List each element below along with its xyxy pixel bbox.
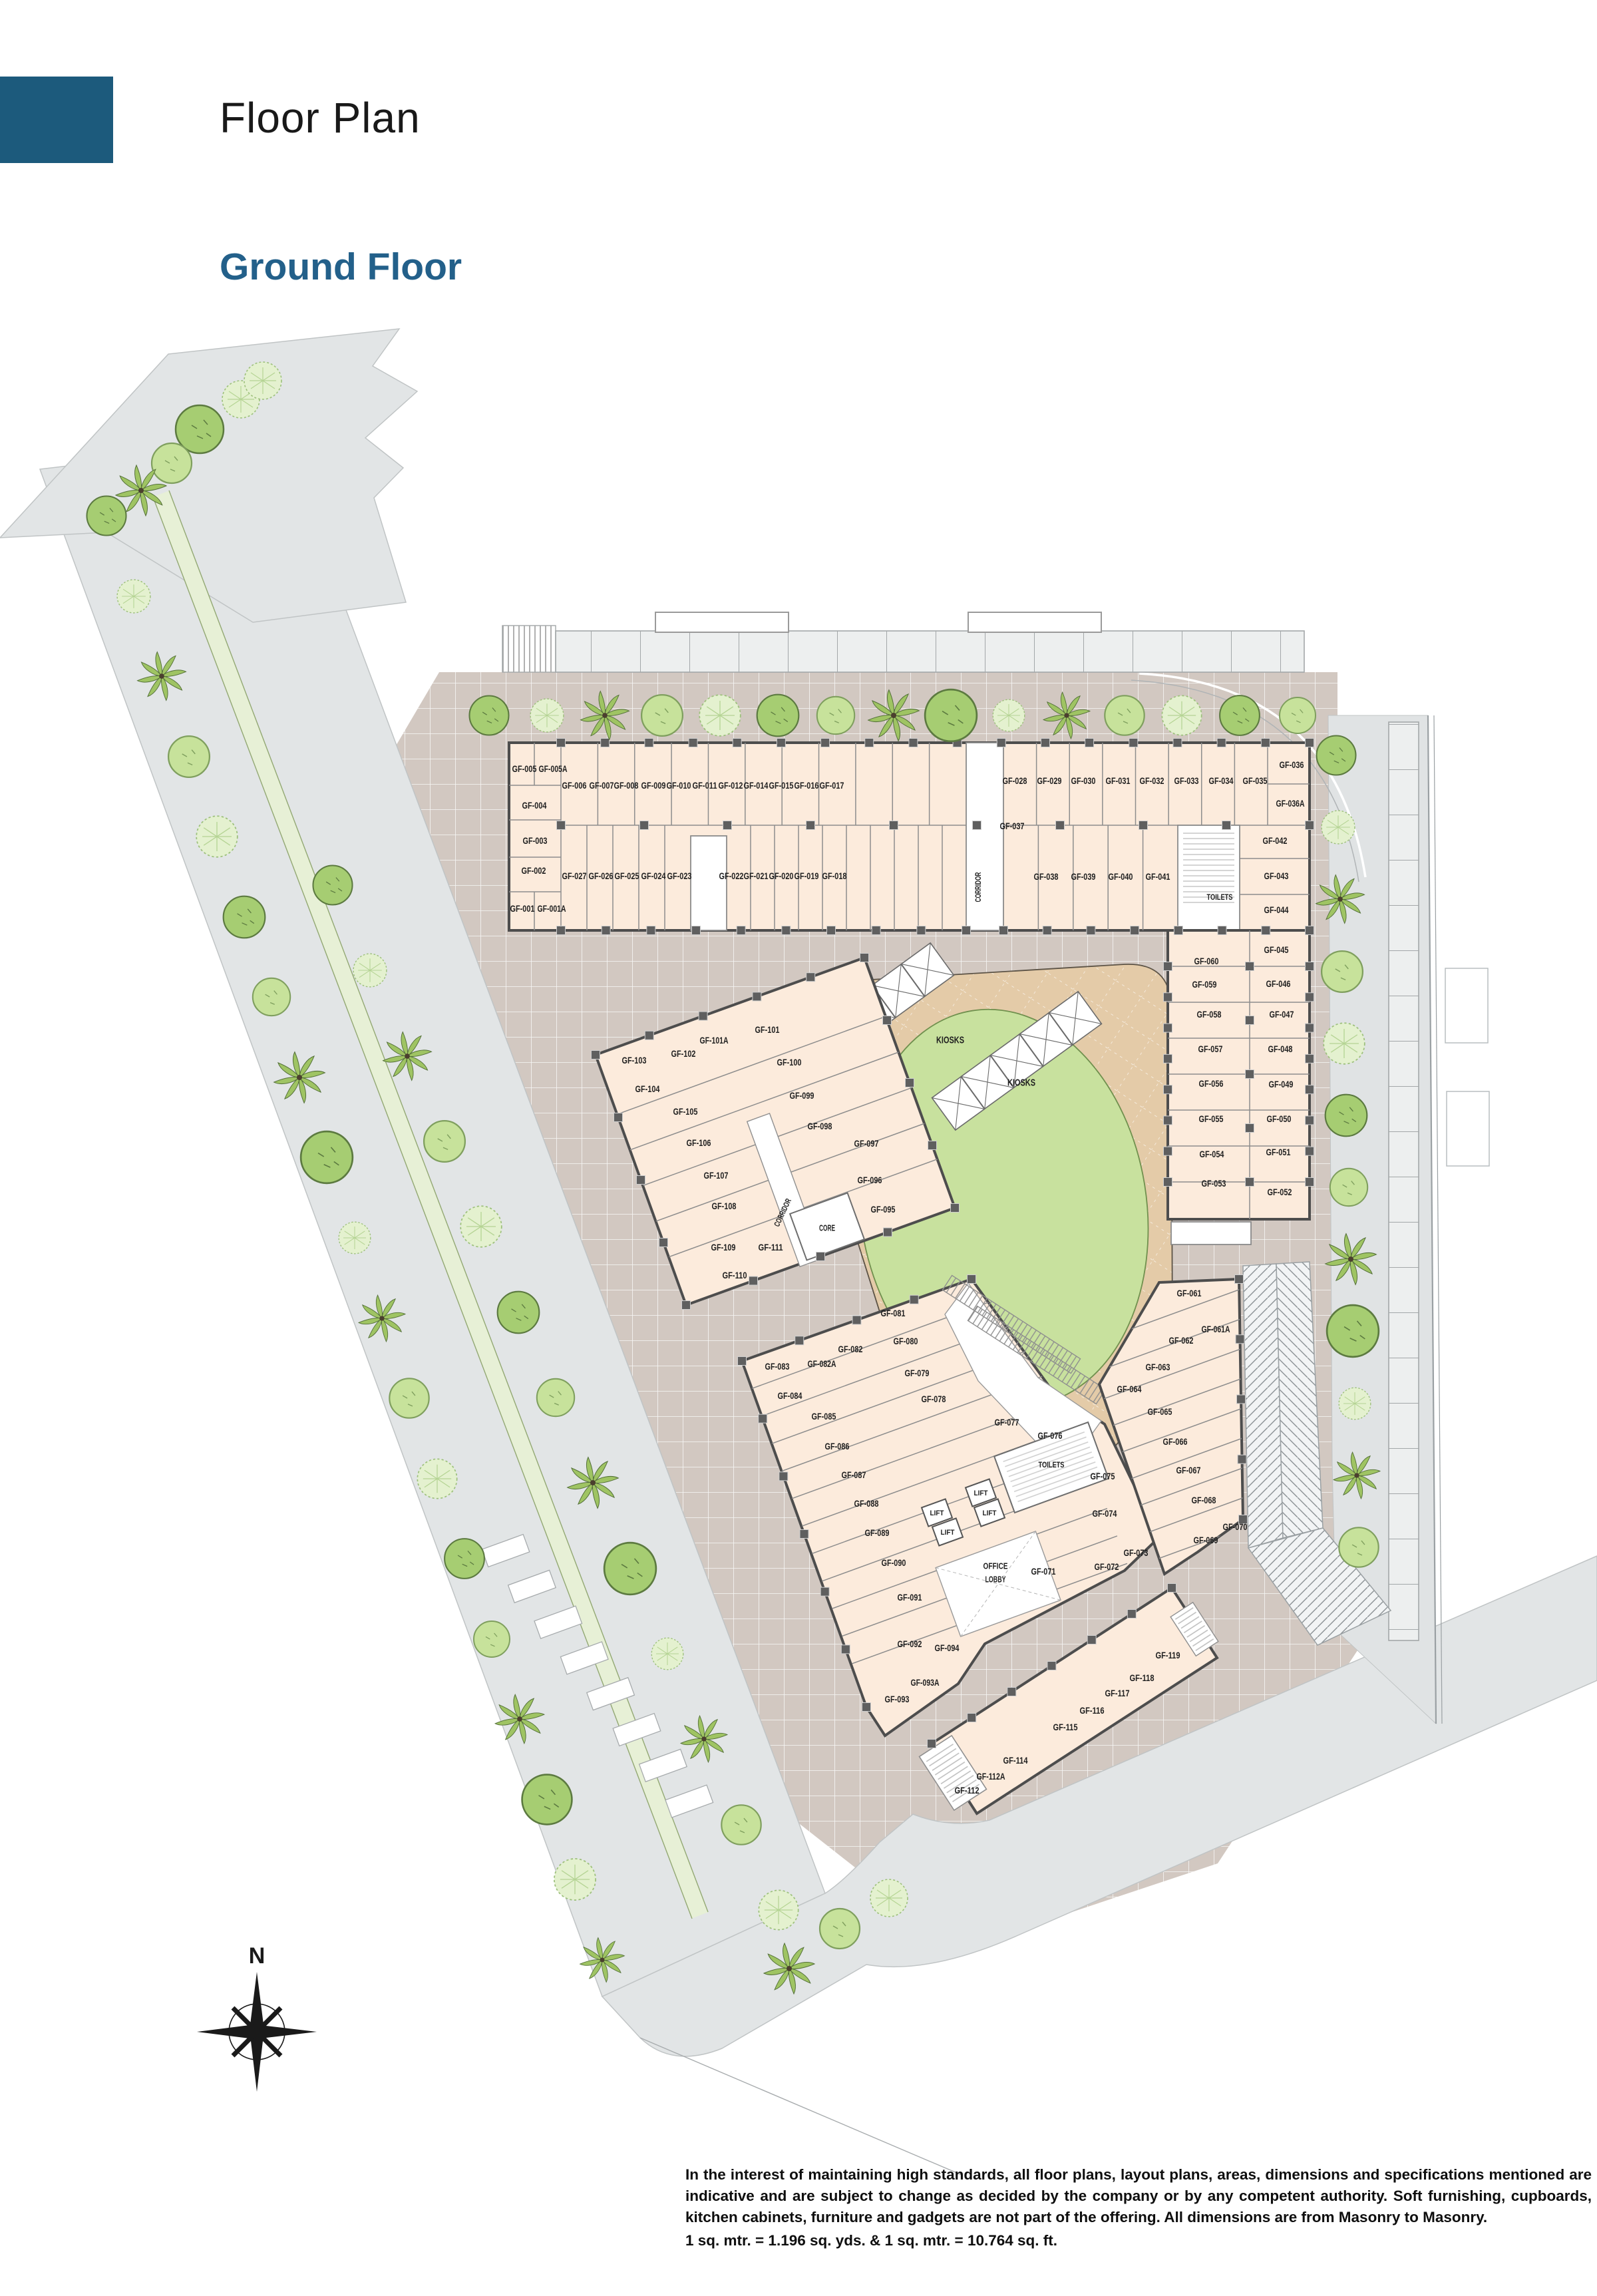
canopy	[968, 612, 1101, 632]
area-label: TOILETS	[1207, 892, 1233, 902]
unit-label: GF-008	[614, 780, 639, 791]
unit-label: GF-042	[1263, 835, 1288, 846]
unit-label: GF-006	[562, 780, 587, 791]
tree	[651, 1638, 683, 1670]
unit-label: GF-031	[1106, 775, 1131, 786]
unit-label: GF-084	[778, 1390, 802, 1401]
unit-label: GF-106	[687, 1137, 711, 1148]
unit-label: GF-005A	[539, 763, 568, 774]
unit-label: GF-102	[671, 1048, 696, 1059]
tree	[1339, 1527, 1378, 1567]
tree	[604, 1543, 656, 1595]
unit-label: GF-085	[812, 1411, 836, 1422]
unit-label: GF-069	[1194, 1535, 1218, 1545]
tree	[993, 699, 1025, 731]
unit-label: GF-111	[759, 1242, 783, 1252]
compass-rose: N	[197, 1943, 317, 2092]
unit-label: GF-110	[723, 1270, 747, 1280]
tree	[196, 816, 238, 857]
unit-label: GF-015	[769, 780, 794, 791]
unit-label: GF-107	[704, 1170, 729, 1181]
unit-label: GF-043	[1264, 870, 1289, 881]
unit-label: GF-112A	[977, 1771, 1005, 1782]
neighbor-stall	[1447, 1091, 1489, 1166]
unit-label: GF-005	[512, 763, 537, 774]
unit-label: GF-096	[858, 1175, 882, 1185]
tree	[817, 697, 854, 734]
top-left-parcel-road	[0, 329, 417, 622]
area-label: LIFT	[930, 1509, 944, 1517]
unit-label: GF-097	[854, 1138, 879, 1149]
unit-label: GF-076	[1038, 1430, 1063, 1441]
unit-label: GF-040	[1109, 871, 1133, 882]
unit-label: GF-104	[635, 1083, 660, 1094]
unit-label: GF-054	[1200, 1149, 1224, 1159]
tree	[353, 954, 387, 987]
unit-label: GF-093	[885, 1694, 910, 1704]
tree	[117, 580, 150, 613]
area-label: LIFT	[941, 1529, 955, 1537]
unit-label: GF-058	[1197, 1009, 1222, 1020]
tree	[530, 699, 564, 732]
unit-label: GF-101	[755, 1024, 780, 1035]
unit-label: GF-033	[1174, 775, 1199, 786]
unit-label: GF-071	[1031, 1566, 1056, 1577]
unit-label: GF-056	[1199, 1078, 1224, 1089]
unit-label: GF-063	[1146, 1362, 1170, 1372]
unit-label: GF-072	[1095, 1561, 1119, 1572]
unit-label: GF-046	[1266, 978, 1291, 989]
tree	[87, 496, 126, 535]
unit-label: GF-004	[522, 800, 547, 811]
compass-n-label: N	[249, 1943, 266, 1969]
tree	[1220, 695, 1260, 735]
unit-label: GF-025	[615, 870, 639, 881]
tree	[1326, 1095, 1367, 1137]
tree	[498, 1292, 540, 1334]
unit-label: GF-108	[712, 1201, 737, 1211]
unit-label: GF-074	[1093, 1508, 1117, 1519]
tree	[699, 695, 741, 736]
unit-label: GF-020	[769, 870, 794, 881]
unit-label: GF-100	[777, 1057, 802, 1067]
tree	[1322, 811, 1355, 844]
unit-label: GF-048	[1268, 1044, 1293, 1054]
conversion-note: 1 sq. mtr. = 1.196 sq. yds. & 1 sq. mtr.…	[685, 2230, 1592, 2251]
unit-label: GF-116	[1080, 1705, 1105, 1716]
unit-label: GF-077	[995, 1417, 1019, 1428]
unit-label: GF-017	[820, 780, 844, 791]
unit-label: GF-115	[1053, 1722, 1078, 1732]
unit-label: GF-061	[1177, 1288, 1202, 1298]
unit-label: GF-019	[795, 870, 819, 881]
unit-label: GF-018	[822, 870, 847, 881]
tree	[537, 1379, 574, 1416]
east-wing	[1168, 930, 1310, 1219]
tree	[925, 689, 977, 741]
unit-label: GF-009	[641, 780, 666, 791]
band-corridor	[966, 743, 1003, 930]
area-label: OFFICE	[983, 1561, 1008, 1571]
tree	[1280, 697, 1316, 733]
area-label: LIFT	[983, 1509, 997, 1517]
unit-label: GF-082A	[808, 1358, 836, 1369]
unit-label: GF-066	[1163, 1436, 1188, 1447]
unit-label: GF-003	[523, 835, 548, 846]
unit-label: GF-105	[673, 1106, 698, 1117]
canopy	[655, 612, 789, 632]
unit-label: GF-024	[641, 870, 666, 881]
tree	[1105, 695, 1144, 735]
unit-label: GF-059	[1192, 979, 1217, 990]
unit-label: GF-089	[865, 1527, 890, 1538]
unit-label: GF-039	[1071, 871, 1096, 882]
tree	[244, 362, 281, 399]
tree	[1322, 951, 1363, 992]
area-label: LIFT	[974, 1489, 988, 1497]
east-parking-column	[1389, 722, 1419, 1640]
tree	[389, 1378, 429, 1418]
unit-label: GF-022	[719, 870, 744, 881]
tree	[1327, 1305, 1379, 1357]
unit-label: GF-026	[589, 870, 614, 881]
tree	[417, 1459, 456, 1498]
area-label: TOILETS	[1039, 1460, 1065, 1469]
area-label: CORE	[819, 1223, 835, 1233]
unit-label: GF-050	[1267, 1113, 1292, 1124]
unit-label: GF-099	[790, 1090, 814, 1101]
tree	[522, 1775, 572, 1825]
tree	[1316, 735, 1355, 775]
unit-label: GF-011	[693, 780, 717, 791]
unit-label: GF-047	[1270, 1009, 1294, 1020]
unit-label: GF-061A	[1202, 1324, 1230, 1334]
tree	[1324, 1023, 1365, 1064]
neighbor-stall	[1445, 968, 1488, 1043]
unit-label: GF-118	[1130, 1672, 1154, 1683]
unit-label: GF-053	[1202, 1178, 1226, 1189]
tree	[554, 1859, 596, 1900]
unit-label: GF-109	[711, 1242, 736, 1252]
unit-label: GF-087	[842, 1469, 866, 1480]
tree	[820, 1909, 860, 1949]
unit-label: GF-086	[825, 1441, 850, 1451]
unit-label: GF-034	[1209, 775, 1234, 786]
unit-label: GF-030	[1071, 775, 1096, 786]
tree	[444, 1539, 484, 1579]
unit-label: GF-062	[1169, 1335, 1194, 1346]
floor-plan-drawing: N GF-005GF-005AGF-004GF-003GF-002GF-001G…	[0, 0, 1597, 2296]
tree	[152, 443, 192, 483]
unit-label: GF-057	[1198, 1044, 1223, 1054]
unit-label: GF-065	[1148, 1406, 1172, 1417]
unit-label: GF-068	[1192, 1495, 1216, 1505]
unit-label: GF-060	[1194, 956, 1219, 966]
unit-label: GF-119	[1156, 1650, 1180, 1660]
top-parking-comb	[502, 626, 556, 672]
wing-external-stair	[1171, 1222, 1251, 1244]
unit-label: GF-079	[905, 1368, 930, 1378]
unit-label: GF-012	[719, 780, 743, 791]
unit-label: GF-055	[1199, 1113, 1224, 1124]
unit-label: GF-023	[667, 870, 692, 881]
tree	[757, 695, 799, 737]
tree	[253, 978, 290, 1016]
unit-label: GF-091	[898, 1592, 922, 1603]
tree	[1162, 695, 1201, 735]
tree	[168, 736, 210, 777]
unit-label: GF-051	[1266, 1147, 1291, 1157]
unit-label: GF-001A	[538, 903, 566, 914]
unit-label: GF-049	[1269, 1079, 1294, 1089]
unit-label: GF-036A	[1276, 798, 1305, 809]
unit-label: GF-080	[894, 1336, 918, 1346]
unit-label: GF-114	[1003, 1755, 1028, 1766]
unit-label: GF-098	[808, 1121, 832, 1131]
unit-label: GF-016	[795, 780, 819, 791]
unit-label: GF-052	[1268, 1187, 1292, 1197]
area-label: KIOSKS	[1007, 1077, 1035, 1088]
unit-label: GF-035	[1243, 775, 1268, 786]
unit-label: GF-014	[744, 780, 769, 791]
tree	[224, 896, 266, 938]
unit-label: GF-007	[590, 780, 614, 791]
tree	[313, 865, 352, 904]
disclaimer: In the interest of maintaining high stan…	[685, 2164, 1592, 2251]
area-label: CORRIDOR	[974, 872, 983, 902]
tree	[759, 1890, 798, 1929]
unit-label: GF-064	[1117, 1384, 1142, 1394]
unit-label: GF-021	[744, 870, 769, 881]
area-label: LOBBY	[985, 1575, 1006, 1585]
unit-label: GF-090	[882, 1557, 906, 1568]
unit-label: GF-028	[1003, 775, 1027, 786]
boundary-line-sw	[640, 2038, 962, 2175]
unit-label: GF-081	[881, 1308, 906, 1318]
unit-label: GF-001	[510, 903, 535, 914]
tree	[301, 1131, 353, 1183]
band-stair	[691, 836, 727, 930]
unit-label: GF-002	[522, 865, 546, 876]
disclaimer-text: In the interest of maintaining high stan…	[685, 2164, 1592, 2228]
tree	[1339, 1388, 1371, 1420]
unit-label: GF-029	[1037, 775, 1062, 786]
unit-label: GF-044	[1264, 904, 1289, 915]
tree	[721, 1805, 761, 1844]
tree	[641, 695, 683, 736]
unit-label: GF-101A	[700, 1035, 729, 1046]
tree	[1330, 1169, 1367, 1206]
tree	[870, 1879, 908, 1917]
unit-label: GF-038	[1034, 871, 1059, 882]
unit-label: GF-094	[935, 1642, 960, 1653]
unit-label: GF-093A	[911, 1677, 940, 1688]
unit-label: GF-041	[1146, 871, 1170, 882]
tree	[474, 1621, 510, 1657]
unit-label: GF-083	[765, 1361, 790, 1372]
unit-label: GF-036	[1280, 759, 1304, 770]
tree	[339, 1222, 371, 1254]
unit-label: GF-027	[562, 870, 587, 881]
unit-label: GF-095	[871, 1204, 896, 1215]
unit-label: GF-088	[854, 1498, 879, 1509]
unit-label: GF-070	[1223, 1521, 1248, 1532]
unit-label: GF-067	[1176, 1465, 1201, 1475]
tree	[469, 695, 508, 735]
area-label: KIOSKS	[936, 1034, 964, 1046]
unit-label: GF-082	[838, 1344, 863, 1354]
unit-label: GF-092	[898, 1638, 922, 1649]
top-parking-row	[556, 631, 1304, 672]
tree	[460, 1206, 502, 1247]
unit-label: GF-117	[1105, 1688, 1130, 1698]
unit-label: GF-112	[955, 1785, 979, 1796]
unit-label: GF-037	[1000, 821, 1025, 831]
tree	[424, 1121, 465, 1162]
unit-label: GF-032	[1140, 775, 1164, 786]
brochure-page: Floor Plan Ground Floor	[0, 0, 1597, 2296]
unit-label: GF-075	[1091, 1471, 1115, 1481]
unit-label: GF-073	[1124, 1547, 1149, 1558]
unit-label: GF-078	[922, 1394, 946, 1404]
unit-label: GF-045	[1264, 944, 1289, 955]
unit-label: GF-103	[622, 1055, 647, 1065]
unit-label: GF-010	[667, 780, 691, 791]
